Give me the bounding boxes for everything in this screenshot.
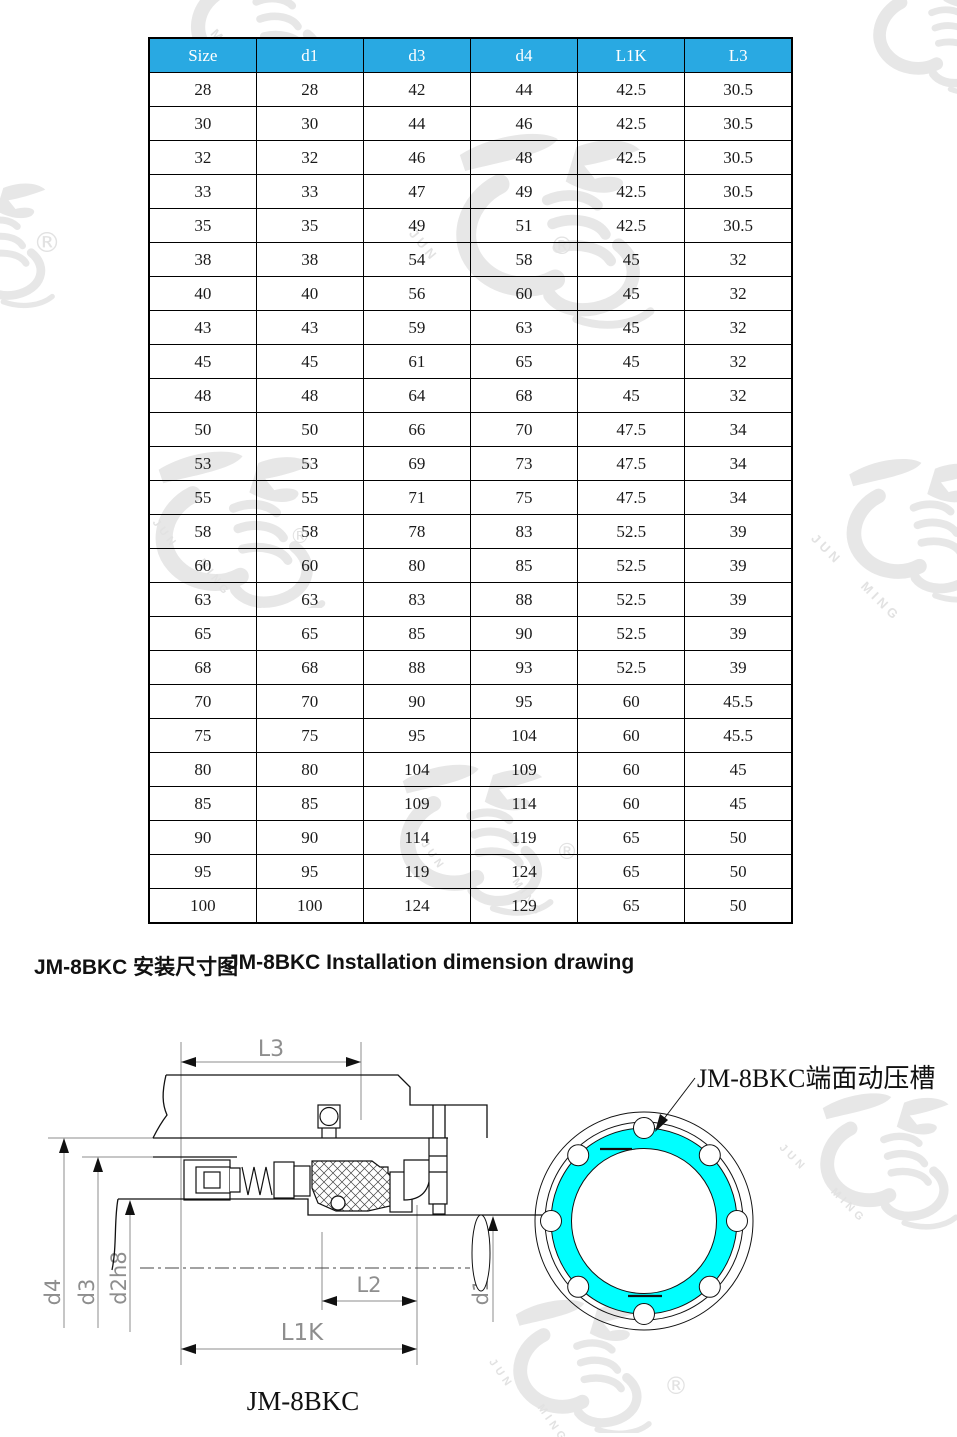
table-cell: 75 [149, 719, 256, 753]
table-cell: 119 [363, 855, 470, 889]
table-cell: 32 [685, 345, 792, 379]
table-cell: 32 [685, 311, 792, 345]
table-row: 90901141196550 [149, 821, 792, 855]
dim-label-d2h8: d2h8 [107, 1251, 131, 1304]
table-cell: 42 [363, 73, 470, 107]
table-cell: 85 [149, 787, 256, 821]
table-cell: 100 [256, 889, 363, 924]
table-cell: 30 [256, 107, 363, 141]
table-cell: 83 [470, 515, 577, 549]
table-cell: 38 [256, 243, 363, 277]
oring-pocket [318, 1105, 340, 1138]
table-cell: 80 [256, 753, 363, 787]
table-cell: 71 [363, 481, 470, 515]
table-cell: 45.5 [685, 685, 792, 719]
shaft-break [472, 1215, 490, 1291]
table-cell: 63 [256, 583, 363, 617]
watermark-logo [850, 0, 957, 135]
table-cell: 32 [685, 243, 792, 277]
column-header-d3: d3 [363, 38, 470, 73]
table-row: 5353697347.534 [149, 447, 792, 481]
cross-section-drawing: L3 L2 L1K d4 d3 d2h8 d1 [41, 1037, 556, 1416]
set-screw [433, 1204, 445, 1214]
table-cell: 45 [685, 753, 792, 787]
table-cell: 78 [363, 515, 470, 549]
table-cell: 39 [685, 549, 792, 583]
table-cell: 69 [363, 447, 470, 481]
table-cell: 61 [363, 345, 470, 379]
table-cell: 48 [470, 141, 577, 175]
table-cell: 45 [578, 345, 685, 379]
table-cell: 63 [149, 583, 256, 617]
dimension-table-header: Sized1d3d4L1KL3 [149, 38, 792, 73]
table-cell: 85 [363, 617, 470, 651]
table-cell: 32 [685, 379, 792, 413]
table-cell: 44 [470, 73, 577, 107]
table-row: 434359634532 [149, 311, 792, 345]
table-row: 85851091146045 [149, 787, 792, 821]
table-cell: 53 [149, 447, 256, 481]
table-cell: 42.5 [578, 209, 685, 243]
table-cell: 39 [685, 515, 792, 549]
table-cell: 45 [149, 345, 256, 379]
table-cell: 52.5 [578, 617, 685, 651]
table-cell: 44 [363, 107, 470, 141]
table-cell: 104 [470, 719, 577, 753]
registered-mark: ® [33, 226, 61, 259]
table-row: 7575951046045.5 [149, 719, 792, 753]
table-row: 6565859052.539 [149, 617, 792, 651]
table-cell: 30.5 [685, 107, 792, 141]
table-cell: 43 [256, 311, 363, 345]
table-cell: 43 [149, 311, 256, 345]
table-row: 3333474942.530.5 [149, 175, 792, 209]
catalog-page: MING JUN ® ® JUN MING ® JUN MING JUN MIN… [0, 0, 957, 1437]
table-cell: 59 [363, 311, 470, 345]
table-row: 5555717547.534 [149, 481, 792, 515]
table-cell: 45 [578, 311, 685, 345]
table-row: 6363838852.539 [149, 583, 792, 617]
table-cell: 32 [685, 277, 792, 311]
table-cell: 54 [363, 243, 470, 277]
table-cell: 47.5 [578, 447, 685, 481]
table-cell: 60 [470, 277, 577, 311]
table-cell: 129 [470, 889, 577, 924]
table-cell: 60 [578, 753, 685, 787]
header-row: Sized1d3d4L1KL3 [149, 38, 792, 73]
table-cell: 90 [470, 617, 577, 651]
table-cell: 73 [470, 447, 577, 481]
column-header-Size: Size [149, 38, 256, 73]
table-row: 80801041096045 [149, 753, 792, 787]
table-cell: 124 [363, 889, 470, 924]
table-cell: 45 [256, 345, 363, 379]
table-cell: 50 [685, 855, 792, 889]
dim-label-L1K: L1K [281, 1320, 324, 1346]
table-cell: 58 [470, 243, 577, 277]
table-cell: 52.5 [578, 549, 685, 583]
table-cell: 55 [149, 481, 256, 515]
table-cell: 65 [470, 345, 577, 379]
table-cell: 45 [578, 243, 685, 277]
table-cell: 95 [363, 719, 470, 753]
table-cell: 90 [363, 685, 470, 719]
table-cell: 95 [256, 855, 363, 889]
table-row: 95951191246550 [149, 855, 792, 889]
table-cell: 30.5 [685, 141, 792, 175]
dim-label-d4: d4 [41, 1279, 65, 1306]
groove-label: JM-8BKC端面动压槽 [697, 1064, 935, 1093]
table-cell: 47.5 [578, 413, 685, 447]
table-cell: 50 [685, 821, 792, 855]
table-cell: 42.5 [578, 141, 685, 175]
table-cell: 35 [149, 209, 256, 243]
table-body: 2828424442.530.53030444642.530.532324648… [149, 73, 792, 924]
column-header-L3: L3 [685, 38, 792, 73]
column-header-L1K: L1K [578, 38, 685, 73]
seal-assembly [184, 1138, 447, 1214]
table-row: 404056604532 [149, 277, 792, 311]
table-cell: 56 [363, 277, 470, 311]
table-cell: 38 [149, 243, 256, 277]
table-row: 3232464842.530.5 [149, 141, 792, 175]
table-cell: 30 [149, 107, 256, 141]
watermark-text: JUN [808, 531, 845, 568]
table-cell: 63 [470, 311, 577, 345]
table-row: 6868889352.539 [149, 651, 792, 685]
table-cell: 95 [149, 855, 256, 889]
spring [242, 1167, 272, 1195]
table-cell: 45.5 [685, 719, 792, 753]
table-cell: 114 [470, 787, 577, 821]
table-row: 5858788352.539 [149, 515, 792, 549]
table-cell: 80 [363, 549, 470, 583]
table-cell: 32 [256, 141, 363, 175]
table-cell: 49 [363, 209, 470, 243]
table-cell: 100 [149, 889, 256, 924]
table-cell: 40 [256, 277, 363, 311]
seal-face-drawing: JM-8BKC端面动压槽 [535, 1064, 935, 1330]
table-row: 707090956045.5 [149, 685, 792, 719]
table-cell: 35 [256, 209, 363, 243]
table-cell: 75 [470, 481, 577, 515]
table-cell: 95 [470, 685, 577, 719]
table-cell: 51 [470, 209, 577, 243]
table-cell: 109 [470, 753, 577, 787]
table-cell: 50 [685, 889, 792, 924]
dim-label-L3: L3 [258, 1037, 284, 1062]
table-cell: 52.5 [578, 651, 685, 685]
table-cell: 65 [578, 889, 685, 924]
dimension-arrows [59, 1057, 498, 1354]
table-cell: 65 [149, 617, 256, 651]
table-cell: 68 [149, 651, 256, 685]
drawing-caption: JM-8BKC [247, 1386, 360, 1416]
table-cell: 60 [256, 549, 363, 583]
table-row: 2828424442.530.5 [149, 73, 792, 107]
table-cell: 34 [685, 413, 792, 447]
table-cell: 53 [256, 447, 363, 481]
table-cell: 93 [470, 651, 577, 685]
table-cell: 34 [685, 447, 792, 481]
table-cell: 88 [470, 583, 577, 617]
table-cell: 45 [685, 787, 792, 821]
dim-label-d3: d3 [75, 1279, 99, 1306]
table-cell: 49 [470, 175, 577, 209]
table-cell: 109 [363, 787, 470, 821]
table-cell: 32 [149, 141, 256, 175]
table-cell: 85 [256, 787, 363, 821]
column-header-d1: d1 [256, 38, 363, 73]
table-row: 3535495142.530.5 [149, 209, 792, 243]
table-cell: 58 [256, 515, 363, 549]
table-cell: 68 [256, 651, 363, 685]
table-cell: 60 [578, 787, 685, 821]
table-cell: 52.5 [578, 583, 685, 617]
table-cell: 70 [256, 685, 363, 719]
table-cell: 33 [149, 175, 256, 209]
shaft [112, 1199, 556, 1291]
table-cell: 114 [363, 821, 470, 855]
table-cell: 55 [256, 481, 363, 515]
table-cell: 42.5 [578, 175, 685, 209]
table-cell: 70 [470, 413, 577, 447]
table-cell: 39 [685, 651, 792, 685]
table-row: 3030444642.530.5 [149, 107, 792, 141]
table-cell: 75 [256, 719, 363, 753]
table-cell: 65 [578, 855, 685, 889]
table-cell: 47.5 [578, 481, 685, 515]
table-row: 484864684532 [149, 379, 792, 413]
table-cell: 66 [363, 413, 470, 447]
table-cell: 65 [256, 617, 363, 651]
table-cell: 60 [149, 549, 256, 583]
table-cell: 33 [256, 175, 363, 209]
table-cell: 28 [149, 73, 256, 107]
table-cell: 70 [149, 685, 256, 719]
table-cell: 64 [363, 379, 470, 413]
column-header-d4: d4 [470, 38, 577, 73]
table-row: 1001001241296550 [149, 889, 792, 924]
table-cell: 30.5 [685, 175, 792, 209]
section-title-english: JM-8BKC Installation dimension drawing [227, 951, 634, 975]
table-cell: 46 [363, 141, 470, 175]
table-cell: 85 [470, 549, 577, 583]
section-title-chinese: JM-8BKC 安装尺寸图 [34, 951, 238, 981]
table-cell: 45 [578, 277, 685, 311]
table-cell: 50 [256, 413, 363, 447]
table-cell: 30.5 [685, 209, 792, 243]
table-cell: 90 [149, 821, 256, 855]
dim-label-L2: L2 [356, 1273, 381, 1297]
table-cell: 28 [256, 73, 363, 107]
table-cell: 46 [470, 107, 577, 141]
table-cell: 34 [685, 481, 792, 515]
table-cell: 119 [470, 821, 577, 855]
table-cell: 42.5 [578, 107, 685, 141]
table-cell: 124 [470, 855, 577, 889]
table-cell: 58 [149, 515, 256, 549]
dimension-table: Sized1d3d4L1KL3 2828424442.530.530304446… [148, 37, 793, 924]
table-cell: 47 [363, 175, 470, 209]
table-cell: 88 [363, 651, 470, 685]
table-cell: 80 [149, 753, 256, 787]
groove-ring [561, 1138, 727, 1304]
table-cell: 83 [363, 583, 470, 617]
table-row: 383854584532 [149, 243, 792, 277]
table-cell: 39 [685, 583, 792, 617]
table-cell: 52.5 [578, 515, 685, 549]
table-row: 6060808552.539 [149, 549, 792, 583]
table-cell: 48 [149, 379, 256, 413]
watermark-text: MING [858, 579, 904, 625]
table-cell: 42.5 [578, 73, 685, 107]
table-cell: 39 [685, 617, 792, 651]
table-cell: 60 [578, 719, 685, 753]
installation-drawing: L3 L2 L1K d4 d3 d2h8 d1 [0, 1020, 957, 1437]
table-cell: 50 [149, 413, 256, 447]
table-cell: 68 [470, 379, 577, 413]
table-cell: 65 [578, 821, 685, 855]
table-cell: 104 [363, 753, 470, 787]
table-cell: 40 [149, 277, 256, 311]
table-cell: 48 [256, 379, 363, 413]
table-cell: 90 [256, 821, 363, 855]
table-cell: 45 [578, 379, 685, 413]
table-row: 454561654532 [149, 345, 792, 379]
table-cell: 60 [578, 685, 685, 719]
table-row: 5050667047.534 [149, 413, 792, 447]
table-cell: 30.5 [685, 73, 792, 107]
rubber-bellows [312, 1161, 395, 1211]
